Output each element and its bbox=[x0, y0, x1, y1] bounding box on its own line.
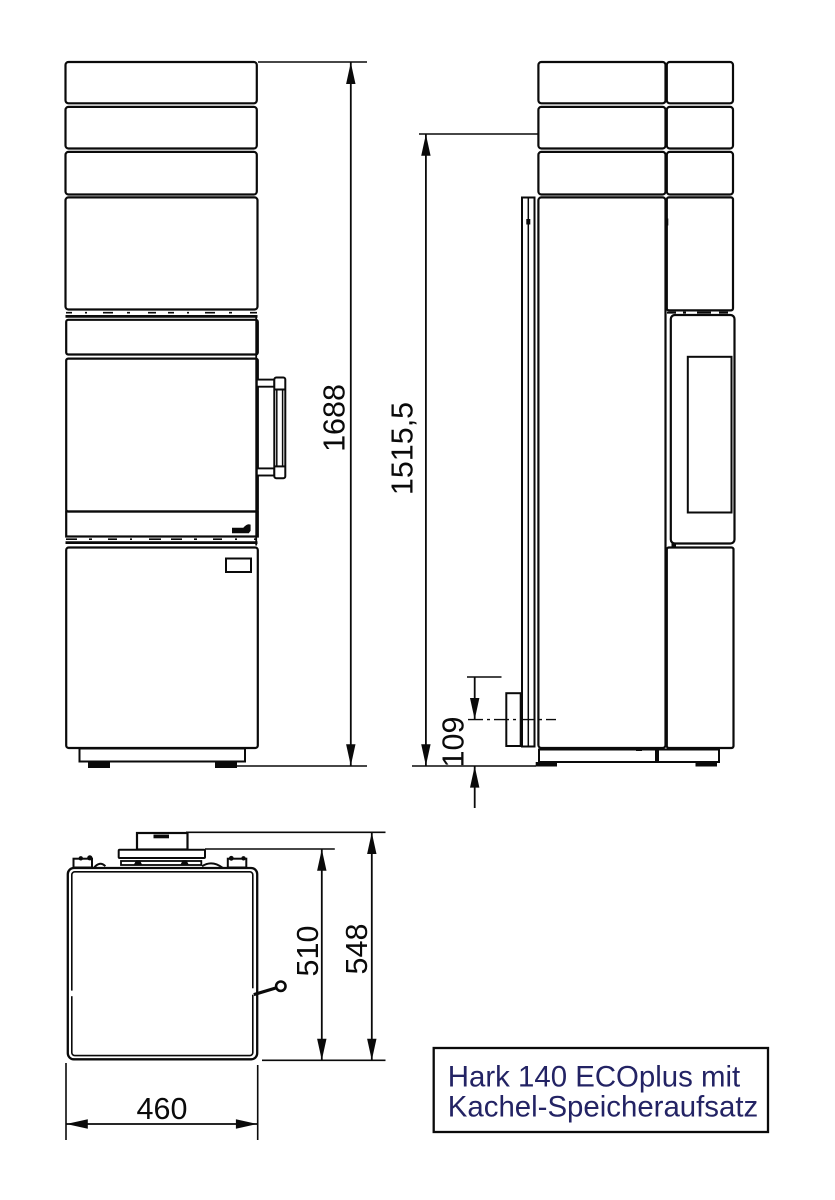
svg-text:109: 109 bbox=[437, 717, 471, 768]
svg-text:Kachel-Speicheraufsatz: Kachel-Speicheraufsatz bbox=[448, 1091, 758, 1124]
svg-text:460: 460 bbox=[137, 1092, 188, 1126]
svg-text:510: 510 bbox=[291, 926, 325, 977]
svg-text:Hark 140 ECOplus mit: Hark 140 ECOplus mit bbox=[448, 1060, 740, 1093]
svg-text:1515,5: 1515,5 bbox=[386, 402, 420, 495]
svg-text:1688: 1688 bbox=[318, 384, 352, 452]
svg-text:548: 548 bbox=[340, 924, 374, 975]
